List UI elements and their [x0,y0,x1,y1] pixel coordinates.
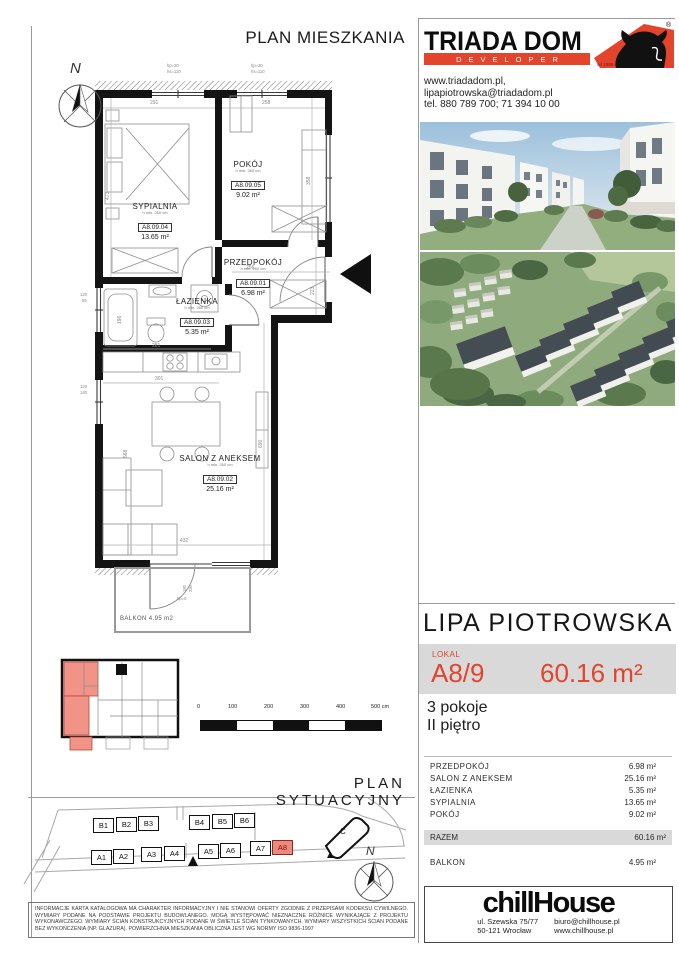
since-label: od 1999 r. [597,62,617,67]
developer-website: www.triadadom.pl, [424,76,560,88]
floor-level: II piętro [427,717,480,735]
table-row: ŁAZIENKA5.35 m² [430,786,656,795]
dim-label: 140 [80,390,87,395]
scale-bar [200,720,382,731]
registered-mark: ® [666,22,671,29]
compass-rose-icon [59,84,101,127]
site-block: A1 [91,850,112,865]
site-block: A2 [113,849,134,864]
dim-label: 291 [150,100,158,106]
dim-label: 281 [152,343,160,349]
dim-label: 196 [117,316,123,324]
developer-phone: tel. 880 789 700; 71 394 10 00 [424,99,560,111]
dim-label: 432 [180,538,188,544]
dim-label: 55 [82,298,87,303]
site-block: B4 [189,815,210,830]
site-block-highlighted: A8 [272,840,293,855]
dim-label: 256 [246,265,254,271]
catalog-sheet: PLAN MIESZKANIA PLAN SYTUACYJNY N SYPIAL… [0,0,679,960]
total-row: RAZEM60.16 m² [424,830,672,845]
scale-tick: 400 [336,704,345,710]
site-block: A4 [164,846,185,861]
agency-box: chillHouse ul. Szewska 75/77 50-121 Wroc… [424,886,673,943]
developer-email: lipapiotrowska@triadadom.pl [424,88,560,100]
table-row: SYPIALNIA13.65 m² [430,798,656,807]
dim-label: hs=110 [167,69,181,74]
developer-contact: www.triadadom.pl, lipapiotrowska@triadad… [424,76,560,111]
scale-tick: 500 cm [371,704,389,710]
site-block: A5 [198,844,219,859]
dim-label: 690 [258,440,264,448]
key-plan [62,660,178,750]
balcony-row: BALKON4.95 m² [430,858,656,867]
dim-label: 258 [262,100,270,106]
dim-label: 301 [155,376,163,382]
legal-disclaimer: INFORMACJE KARTA KATALOGOWA MA CHARAKTER… [28,902,415,938]
building-c-label: C [340,827,346,836]
table-row: POKÓJ9.02 m² [430,810,656,819]
site-block: B1 [93,818,114,833]
compass-n-label: N [70,60,81,77]
agency-contact: biuro@chillhouse.pl www.chillhouse.pl [554,918,620,935]
tree-icon [188,856,198,866]
dim-label: 120 [80,384,87,389]
siteplan-compass-icon [355,861,393,901]
siteplan-compass-n-label: N [366,844,375,858]
dim-label: 358 [306,177,312,185]
site-block: B3 [138,816,159,831]
dim-label: hs=110 [251,69,265,74]
scale-tick: 300 [300,704,309,710]
siteplan-title: PLAN SYTUACYJNY [228,775,405,809]
photo-street-view [420,122,675,250]
site-block: B5 [212,814,233,829]
dim-label: hp=0 [177,596,186,601]
dim-label: 568 [123,450,129,458]
room-label-lazienka: ŁAZIENKA h min. 260 cm A8.09.03 5.35 m² [160,297,234,337]
site-block: A3 [141,847,162,862]
unit-number: A8/9 [431,658,485,689]
table-row: PRZEDPOKÓJ6.98 m² [430,762,656,771]
agency-logo-text: chillHouse [425,888,672,918]
agency-address: ul. Szewska 75/77 50-121 Wrocław [477,918,538,935]
site-block: B2 [116,817,137,832]
table-row: SALON Z ANEKSEM25.16 m² [430,774,656,783]
dim-label: 223 [310,287,316,295]
developer-bar: DEVELOPER [424,53,590,65]
balcony-label: BALKON 4.95 m2 [120,616,173,622]
dim-label: 180 [182,585,187,592]
building-c-shape [326,818,369,858]
scale-tick: 200 [264,704,273,710]
plan-title: PLAN MIESZKANIA [150,28,405,48]
dim-label: 473 [105,192,111,200]
photo-aerial-view [420,252,675,406]
dim-label: 120 [80,292,87,297]
room-label-pokoj: POKÓJ h min. 260 cm A8.09.05 9.02 m² [210,160,286,200]
scale-tick: 100 [228,704,237,710]
room-label-salon: SALON Z ANEKSEM h min. 260 cm A8.09.02 2… [172,454,268,494]
room-label-sypialnia: SYPIALNIA h min. 260 cm A8.09.04 13.65 m… [115,202,195,242]
project-title: LIPA PIOTROWSKA [423,609,673,638]
dim-label: hp=20 [167,63,179,68]
scale-tick: 0 [197,704,200,710]
dim-label: 230 [188,585,193,592]
entrance-arrow-icon [340,254,371,294]
site-block: A6 [220,843,241,858]
rooms-count: 3 pokoje [427,699,488,717]
site-block: B6 [234,813,255,828]
dim-label: hp=20 [251,63,263,68]
site-block: A7 [250,841,271,856]
unit-area: 60.16 m² [540,658,643,689]
